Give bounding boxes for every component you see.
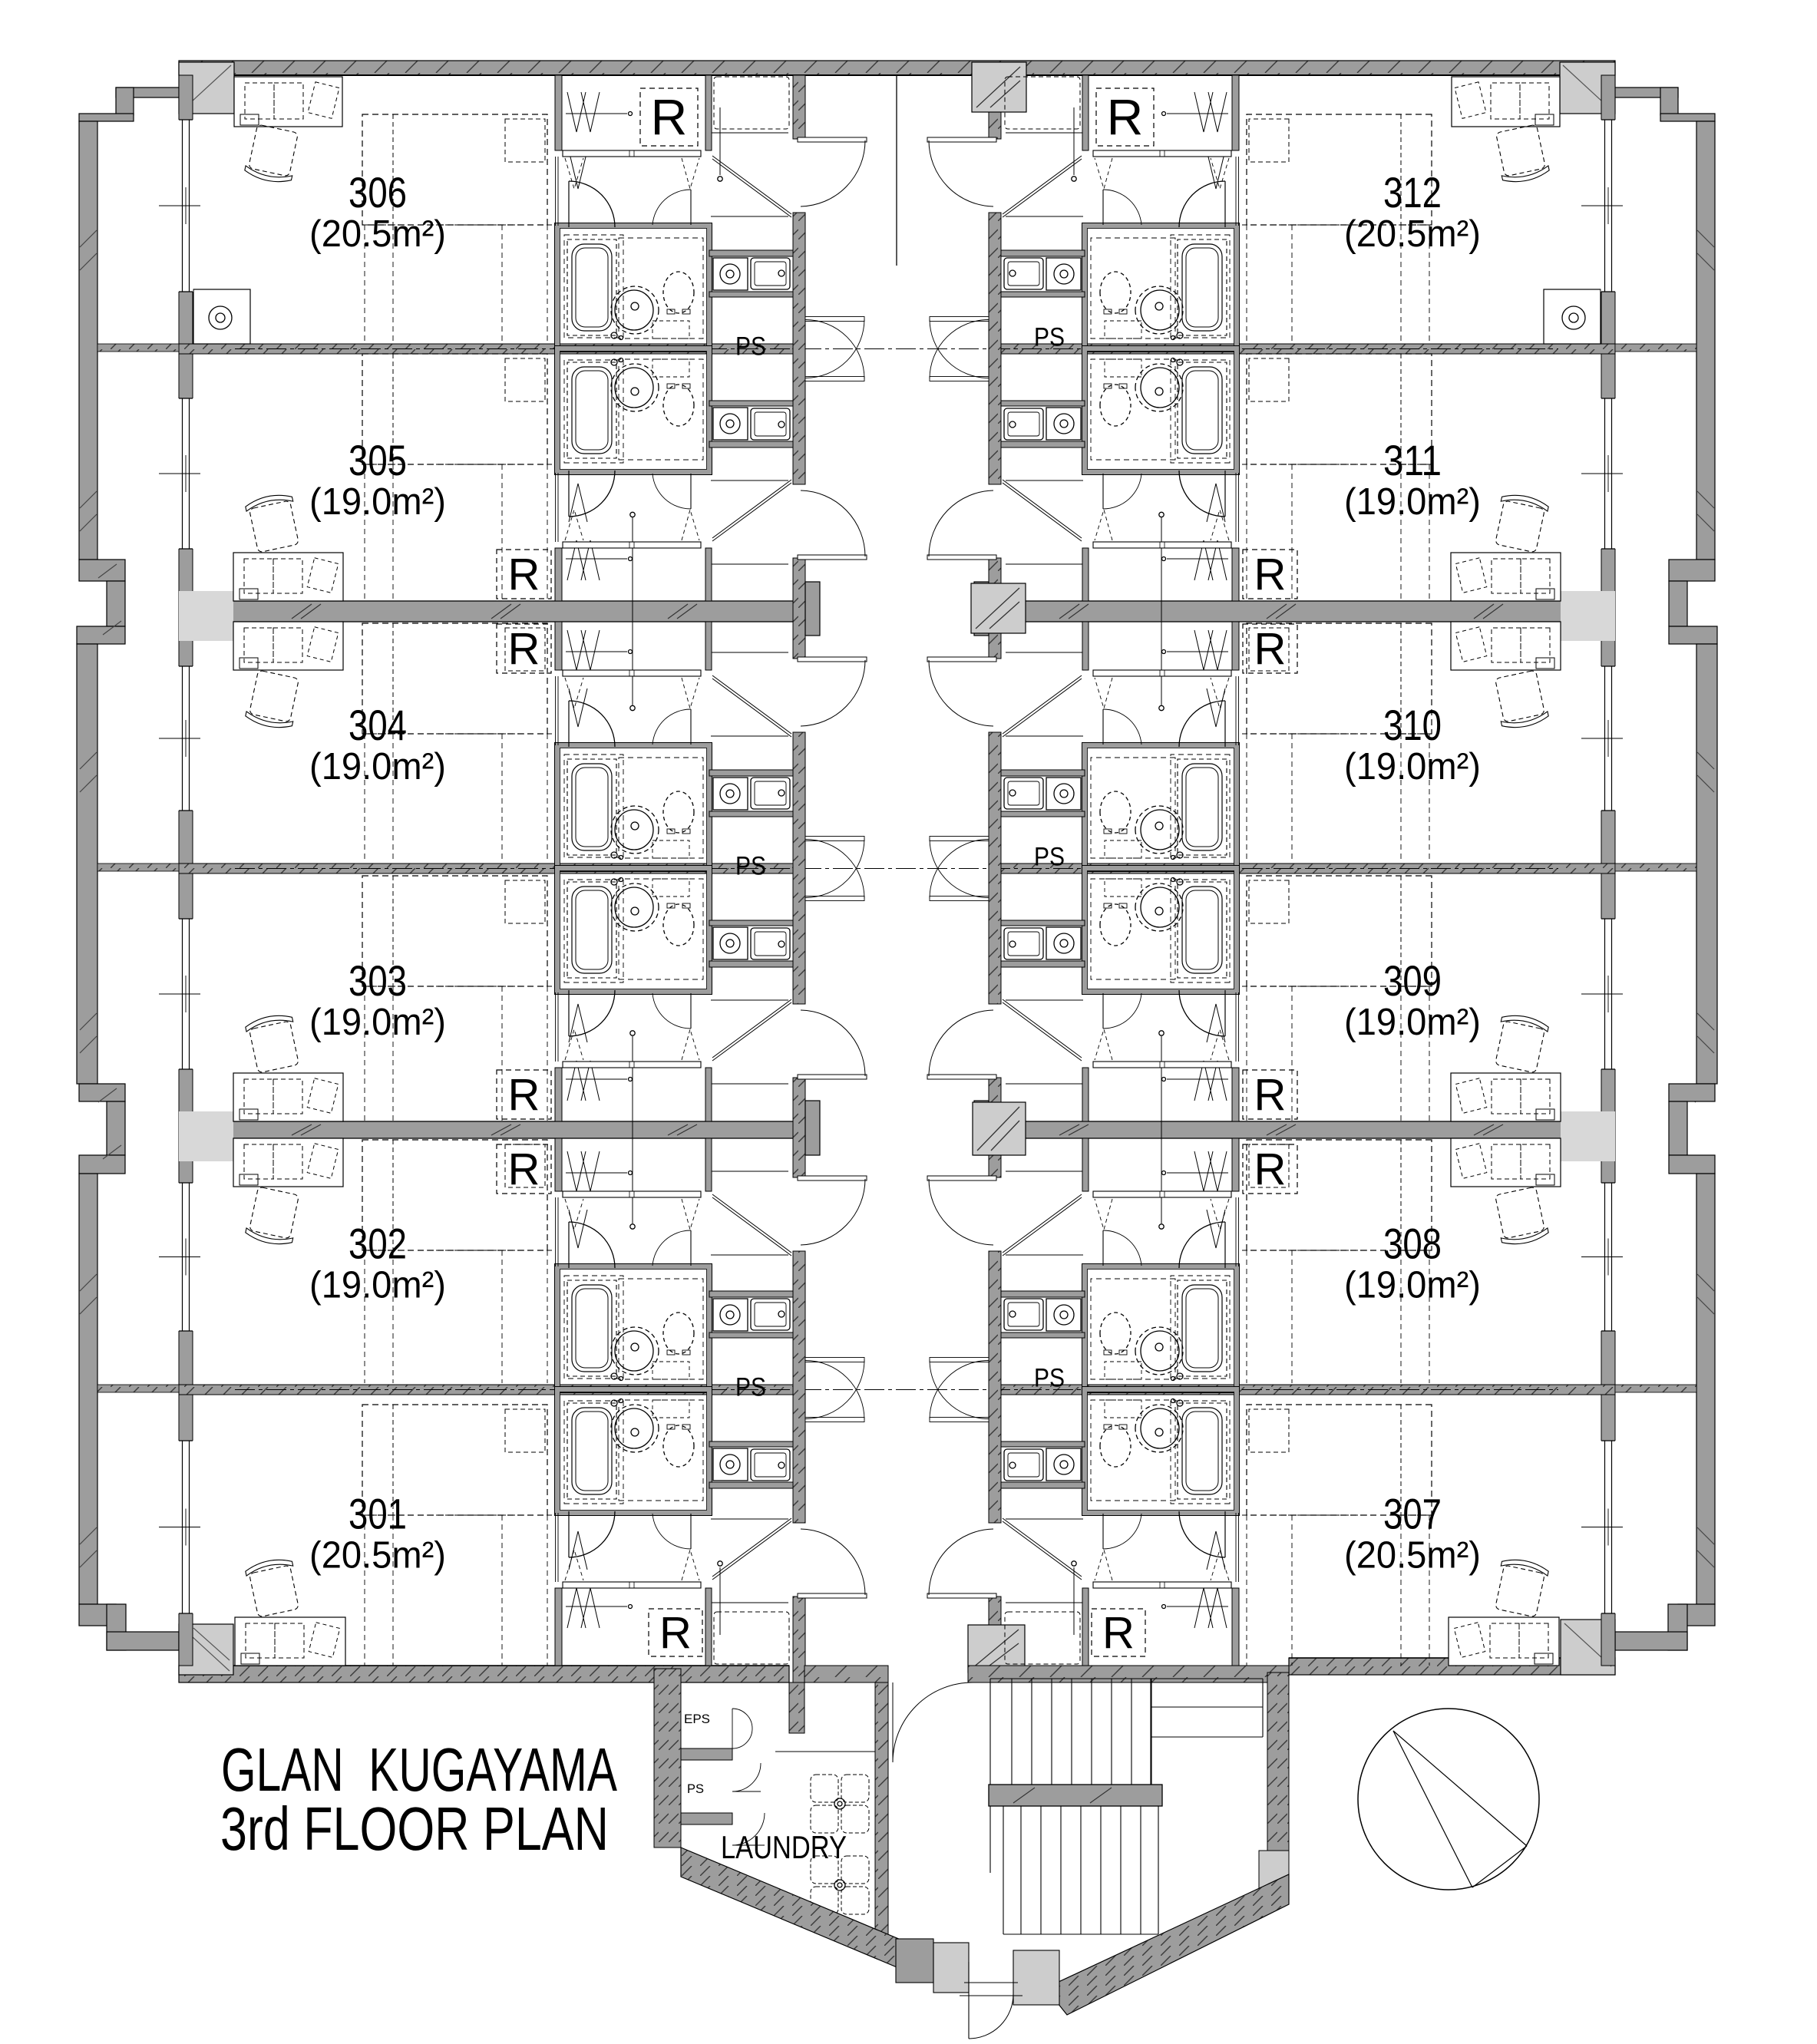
svg-text:(19.0m²): (19.0m²): [1344, 481, 1481, 523]
svg-text:R: R: [1102, 1608, 1135, 1658]
svg-text:R: R: [508, 1070, 540, 1120]
svg-text:PS: PS: [735, 1373, 766, 1402]
svg-text:PS: PS: [1034, 323, 1065, 352]
svg-text:R: R: [508, 1144, 540, 1194]
svg-text:R: R: [1254, 550, 1287, 599]
svg-text:(20.5m²): (20.5m²): [309, 1535, 446, 1577]
svg-text:(20.5m²): (20.5m²): [309, 213, 446, 255]
svg-text:R: R: [508, 624, 540, 674]
svg-text:310: 310: [1383, 701, 1442, 749]
svg-text:306: 306: [349, 168, 407, 216]
svg-text:312: 312: [1383, 168, 1442, 216]
svg-text:(19.0m²): (19.0m²): [309, 1002, 446, 1043]
svg-text:PS: PS: [735, 332, 766, 362]
svg-text:R: R: [1254, 1070, 1287, 1120]
svg-text:R: R: [1254, 624, 1287, 674]
svg-text:302: 302: [349, 1220, 407, 1268]
svg-text:(19.0m²): (19.0m²): [1344, 1265, 1481, 1306]
svg-text:307: 307: [1383, 1490, 1442, 1538]
svg-text:(19.0m²): (19.0m²): [1344, 1002, 1481, 1043]
svg-text:304: 304: [349, 701, 407, 749]
svg-text:(19.0m²): (19.0m²): [309, 746, 446, 788]
svg-text:308: 308: [1383, 1220, 1442, 1268]
svg-text:PS: PS: [1034, 843, 1065, 872]
svg-text:(19.0m²): (19.0m²): [1344, 746, 1481, 788]
svg-text:R: R: [659, 1608, 692, 1658]
svg-text:(19.0m²): (19.0m²): [309, 481, 446, 523]
svg-text:R: R: [508, 550, 540, 599]
svg-text:3rd FLOOR PLAN: 3rd FLOOR PLAN: [220, 1795, 609, 1863]
svg-text:309: 309: [1383, 956, 1442, 1005]
svg-text:301: 301: [349, 1490, 407, 1538]
svg-text:PS: PS: [1034, 1364, 1065, 1393]
svg-text:LAUNDRY: LAUNDRY: [721, 1829, 847, 1865]
svg-text:PS: PS: [687, 1781, 704, 1796]
svg-text:305: 305: [349, 436, 407, 484]
svg-text:EPS: EPS: [684, 1712, 710, 1726]
svg-text:(20.5m²): (20.5m²): [1344, 213, 1481, 255]
svg-text:R: R: [651, 88, 688, 145]
svg-text:303: 303: [349, 956, 407, 1005]
svg-text:R: R: [1107, 88, 1144, 145]
svg-text:(20.5m²): (20.5m²): [1344, 1535, 1481, 1577]
svg-text:R: R: [1254, 1144, 1287, 1194]
svg-text:GLAN KUGAYAMA: GLAN KUGAYAMA: [221, 1735, 617, 1804]
svg-text:(19.0m²): (19.0m²): [309, 1265, 446, 1306]
svg-text:PS: PS: [735, 852, 766, 881]
svg-text:311: 311: [1383, 436, 1442, 484]
